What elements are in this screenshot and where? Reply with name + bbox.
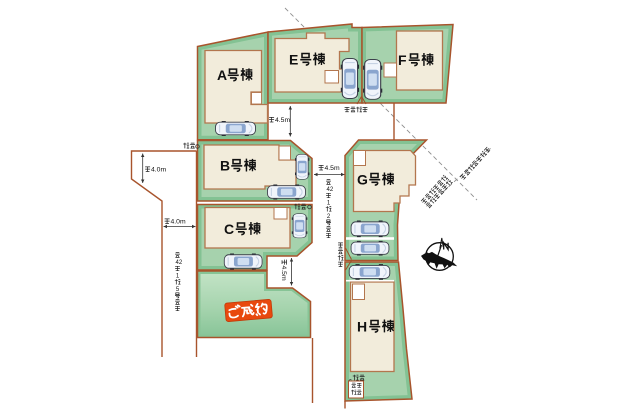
svg-text:42: 42 xyxy=(327,187,334,193)
svg-text:G: G xyxy=(357,171,368,187)
svg-text:E: E xyxy=(289,51,298,67)
svg-text:42: 42 xyxy=(176,260,183,266)
svg-text:4.5m: 4.5m xyxy=(280,266,287,281)
svg-text:A: A xyxy=(217,67,227,83)
svg-text:4.0m: 4.0m xyxy=(151,167,166,174)
svg-text:4.5m: 4.5m xyxy=(275,117,290,124)
svg-text:B: B xyxy=(220,158,230,174)
svg-text:H: H xyxy=(357,318,367,334)
svg-text:4.0m: 4.0m xyxy=(171,219,186,226)
svg-text:F: F xyxy=(398,52,407,68)
svg-text:4.5m: 4.5m xyxy=(325,165,340,172)
svg-text:C: C xyxy=(224,221,234,237)
